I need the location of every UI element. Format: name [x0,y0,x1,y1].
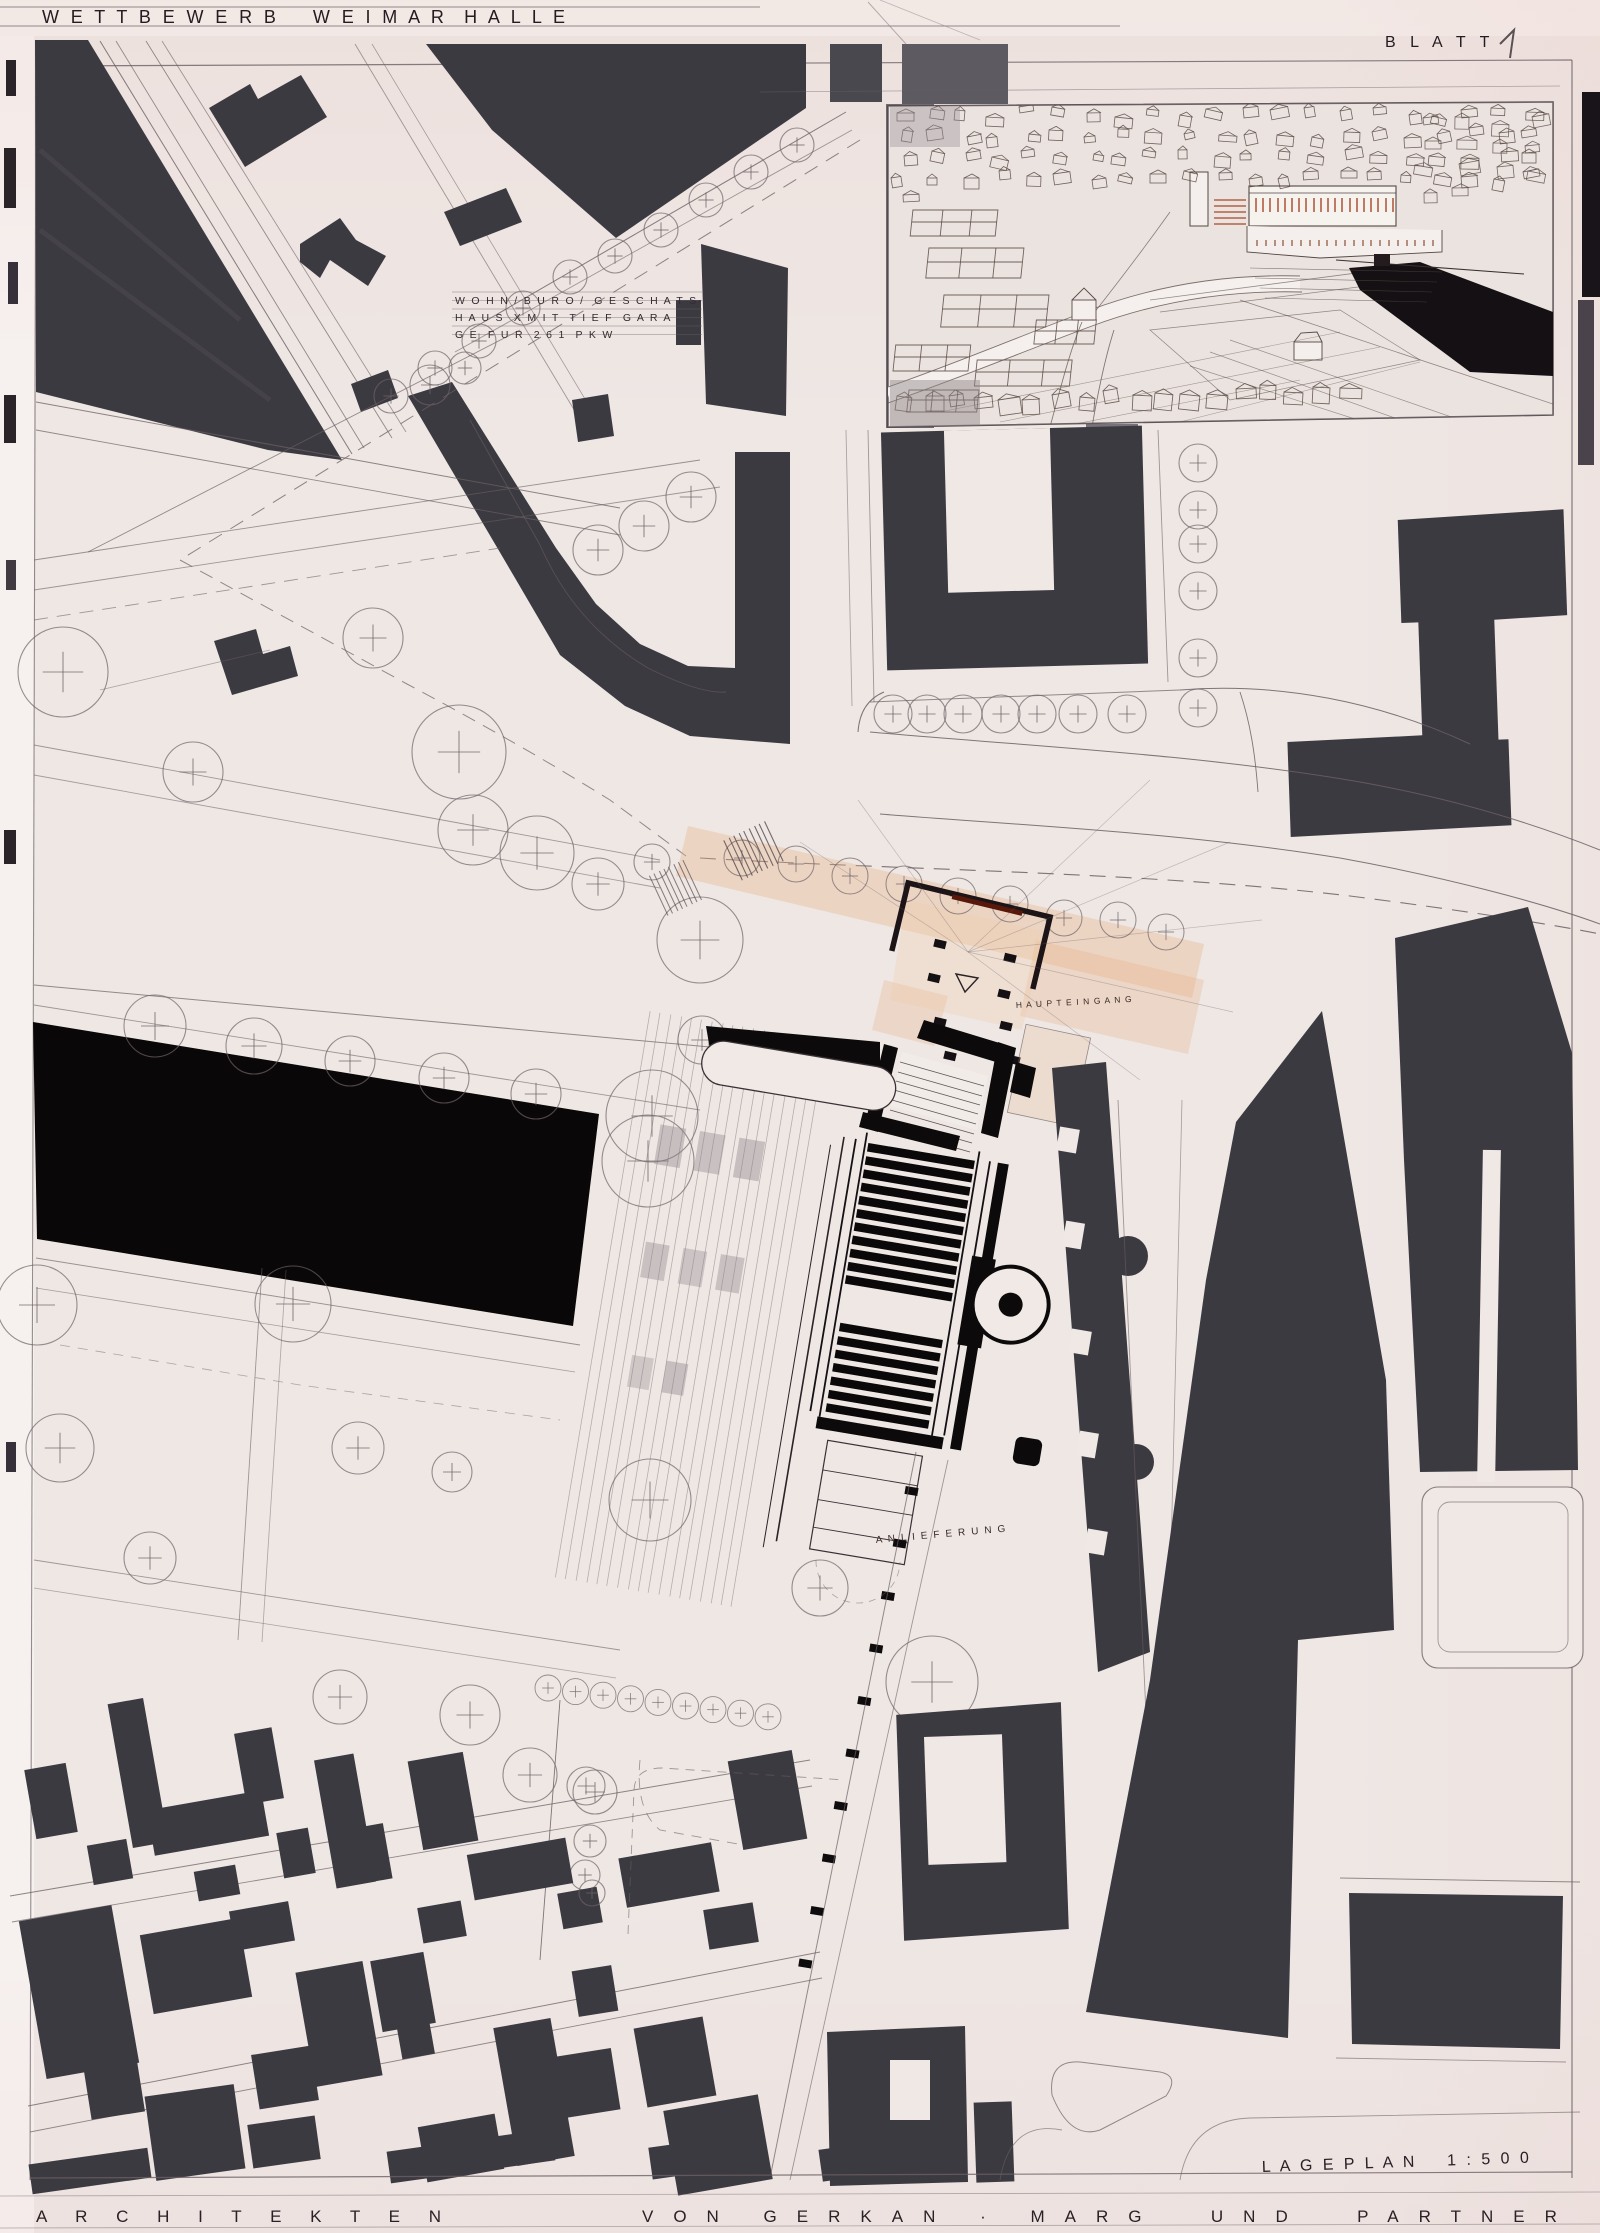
svg-text:W E T T B E W E R B W E I M: W E T T B E W E R B W E I M A R H A L L … [42,7,568,27]
svg-text:A R C H I T E K T E N: A R C H I T E K T E N [36,2207,453,2226]
svg-text:VON GERKAN · MARG UND PARTNE: VON GERKAN · MARG UND PARTNER [642,2207,1577,2226]
svg-text:B L A T T: B L A T T [1385,34,1494,51]
svg-text:G E F U R 2 6 1 P K W: G E F U R 2 6 1 P K W [455,329,614,341]
svg-text:H A U S X M I T T I E F G A: H A U S X M I T T I E F G A R A [455,312,672,324]
svg-text:W O H N / B U R O / G E S C H: W O H N / B U R O / G E S C H A T S- [455,295,703,307]
